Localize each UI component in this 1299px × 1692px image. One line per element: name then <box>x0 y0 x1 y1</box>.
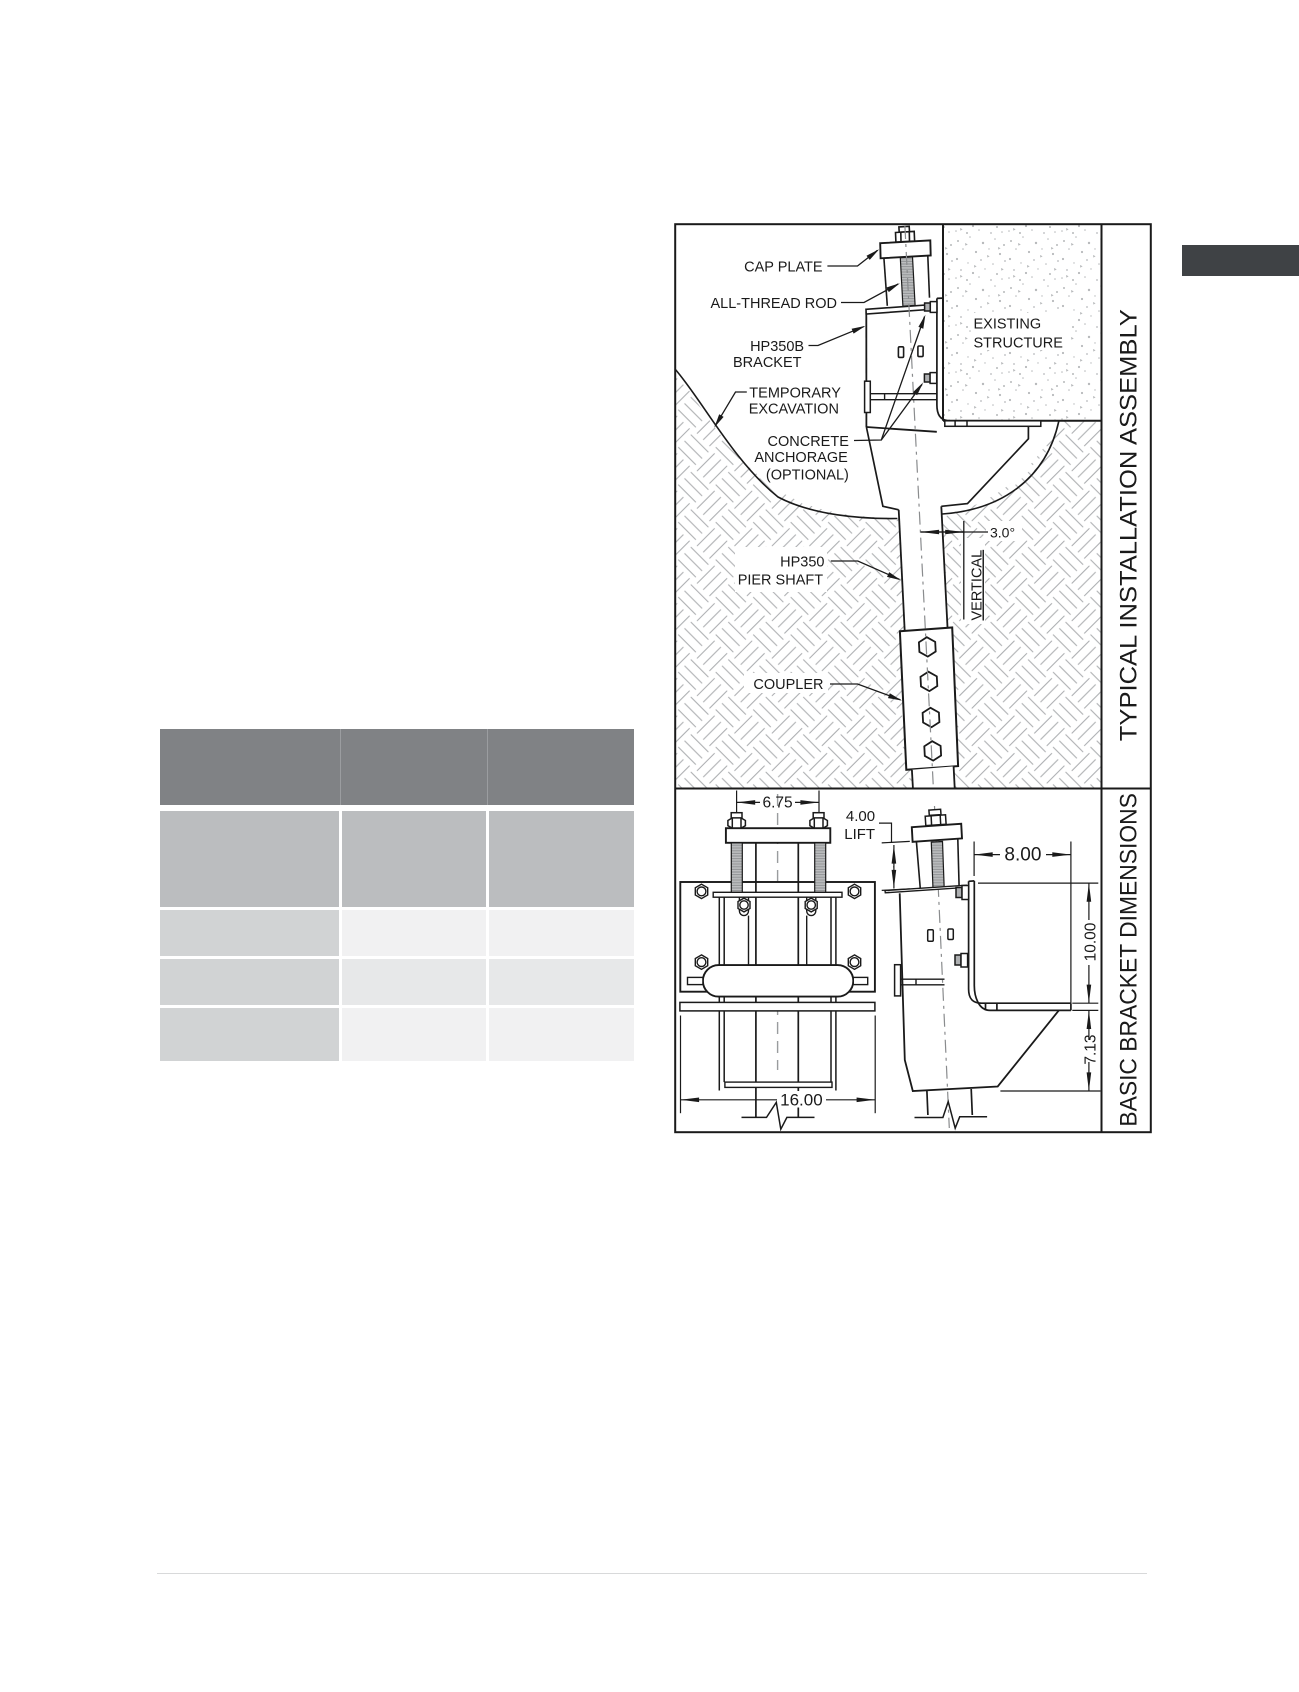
svg-text:HP350B: HP350B <box>750 339 804 355</box>
svg-text:PIER SHAFT: PIER SHAFT <box>738 572 824 588</box>
svg-text:3.0°: 3.0° <box>990 525 1015 541</box>
svg-text:16.00: 16.00 <box>780 1091 823 1110</box>
svg-text:LIFT: LIFT <box>844 826 875 843</box>
svg-text:TYPICAL INSTALLATION ASSEMBLY: TYPICAL INSTALLATION ASSEMBLY <box>1117 309 1143 741</box>
svg-text:10.00: 10.00 <box>1083 922 1100 961</box>
svg-text:STRUCTURE: STRUCTURE <box>974 336 1064 352</box>
svg-text:CAP PLATE: CAP PLATE <box>744 259 823 275</box>
svg-text:8.00: 8.00 <box>1004 845 1041 866</box>
svg-text:4.00: 4.00 <box>846 808 875 825</box>
svg-text:COUPLER: COUPLER <box>753 677 823 693</box>
svg-text:CONCRETE: CONCRETE <box>768 434 850 450</box>
svg-text:EXCAVATION: EXCAVATION <box>749 402 839 418</box>
svg-text:VERTICAL: VERTICAL <box>970 550 986 621</box>
svg-text:ALL-THREAD ROD: ALL-THREAD ROD <box>711 296 838 312</box>
svg-text:(OPTIONAL): (OPTIONAL) <box>766 467 849 483</box>
svg-text:HP350: HP350 <box>780 554 824 570</box>
svg-text:EXISTING: EXISTING <box>974 317 1042 333</box>
svg-text:6.75: 6.75 <box>763 794 793 811</box>
svg-text:BRACKET: BRACKET <box>733 355 802 371</box>
svg-text:BASIC BRACKET DIMENSIONS: BASIC BRACKET DIMENSIONS <box>1117 793 1143 1127</box>
svg-text:TEMPORARY: TEMPORARY <box>749 385 841 401</box>
svg-text:7.13: 7.13 <box>1083 1035 1100 1065</box>
svg-text:ANCHORAGE: ANCHORAGE <box>754 450 848 466</box>
